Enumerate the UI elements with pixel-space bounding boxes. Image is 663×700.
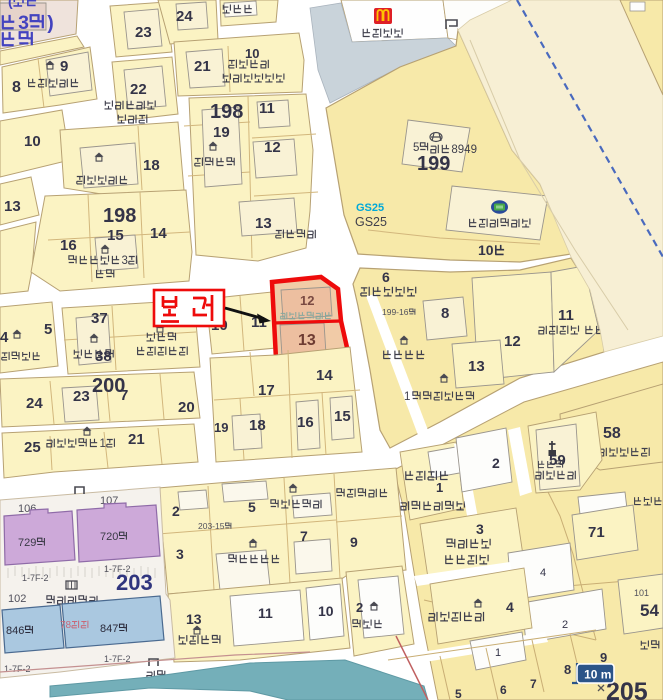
svg-text:198: 198: [103, 205, 136, 227]
svg-text:15: 15: [334, 408, 351, 425]
svg-text:3: 3: [18, 12, 29, 34]
svg-text:19: 19: [213, 124, 230, 141]
svg-text:8949: 8949: [451, 144, 477, 156]
svg-text:10 m: 10 m: [584, 668, 611, 682]
svg-text:18: 18: [249, 417, 266, 434]
svg-text:13: 13: [468, 358, 485, 375]
svg-text:2: 2: [492, 455, 500, 471]
svg-text:10: 10: [24, 133, 41, 150]
svg-text:8: 8: [564, 662, 571, 677]
svg-text:21: 21: [194, 58, 211, 75]
svg-text:37: 37: [91, 310, 108, 327]
svg-text:58: 58: [603, 425, 621, 442]
svg-text:11: 11: [558, 307, 574, 324]
svg-text:71: 71: [588, 524, 605, 541]
svg-text:(: (: [8, 0, 13, 9]
svg-text:729: 729: [18, 537, 36, 549]
svg-text:16: 16: [60, 237, 77, 254]
svg-text:17: 17: [258, 382, 275, 399]
svg-text:1-7F-2: 1-7F-2: [22, 573, 49, 583]
svg-text:7: 7: [530, 677, 537, 691]
svg-text:4: 4: [540, 567, 546, 579]
svg-text:14: 14: [316, 367, 333, 384]
svg-text:21: 21: [128, 431, 145, 448]
svg-text:7: 7: [120, 387, 128, 404]
svg-text:5: 5: [44, 321, 52, 338]
svg-text:54: 54: [640, 601, 659, 620]
svg-text:2: 2: [562, 619, 568, 631]
svg-text:23: 23: [135, 24, 152, 41]
svg-text:1: 1: [100, 438, 106, 450]
svg-text:3: 3: [176, 546, 184, 562]
svg-text:12: 12: [300, 293, 314, 308]
svg-text:22: 22: [130, 81, 147, 98]
svg-text:2: 2: [172, 503, 180, 519]
svg-text:1-7F-2: 1-7F-2: [4, 664, 31, 674]
svg-text:10: 10: [245, 46, 259, 61]
svg-text:14: 14: [150, 225, 167, 242]
svg-text:10: 10: [478, 242, 494, 258]
svg-text:4: 4: [506, 599, 514, 615]
svg-text:1: 1: [436, 480, 443, 495]
svg-text:25: 25: [24, 439, 41, 456]
svg-text:12: 12: [264, 139, 281, 156]
svg-text:3: 3: [476, 521, 484, 537]
svg-text:20: 20: [178, 399, 195, 416]
svg-text:): ): [47, 12, 54, 34]
svg-text:4: 4: [0, 329, 9, 346]
svg-text:38: 38: [95, 348, 112, 365]
svg-text:13: 13: [255, 215, 272, 232]
svg-text:5: 5: [455, 687, 462, 700]
svg-text:198: 198: [210, 101, 243, 123]
svg-text:13: 13: [186, 611, 202, 627]
svg-text:101: 101: [634, 588, 649, 598]
svg-text:13: 13: [4, 198, 21, 215]
svg-text:720: 720: [100, 531, 118, 543]
svg-text:24: 24: [176, 8, 193, 25]
svg-text:12: 12: [504, 333, 521, 350]
svg-text:18: 18: [143, 157, 160, 174]
svg-text:846: 846: [6, 625, 24, 637]
svg-text:8: 8: [441, 305, 449, 322]
svg-text:2: 2: [356, 600, 363, 615]
svg-text:3: 3: [122, 255, 128, 267]
svg-text:10: 10: [318, 603, 334, 619]
svg-text:9: 9: [600, 650, 607, 665]
svg-text:203-15: 203-15: [198, 521, 225, 531]
svg-text:15: 15: [107, 227, 124, 244]
svg-text:11: 11: [258, 605, 273, 621]
svg-text:9: 9: [60, 58, 68, 75]
svg-text:102: 102: [8, 593, 26, 605]
svg-text:199-16: 199-16: [382, 307, 409, 317]
svg-text:11: 11: [259, 100, 275, 117]
svg-text:7: 7: [300, 528, 308, 544]
svg-text:13: 13: [298, 332, 316, 349]
svg-text:6: 6: [382, 269, 390, 285]
svg-text:1: 1: [404, 391, 410, 403]
svg-text:GS25: GS25: [356, 202, 384, 214]
svg-text:GS25: GS25: [355, 215, 387, 229]
svg-text:8: 8: [12, 79, 21, 96]
svg-text:24: 24: [26, 395, 43, 412]
svg-text:847: 847: [100, 623, 118, 635]
svg-text:203: 203: [116, 570, 153, 595]
svg-text:19: 19: [214, 420, 228, 435]
svg-text:16: 16: [297, 414, 314, 431]
svg-text:9: 9: [350, 534, 358, 550]
svg-text:5: 5: [248, 499, 256, 515]
svg-text:199: 199: [417, 153, 450, 175]
svg-text:6: 6: [500, 683, 507, 697]
svg-text:23: 23: [73, 388, 90, 405]
svg-text:1: 1: [495, 647, 501, 659]
svg-text:78: 78: [60, 620, 72, 631]
